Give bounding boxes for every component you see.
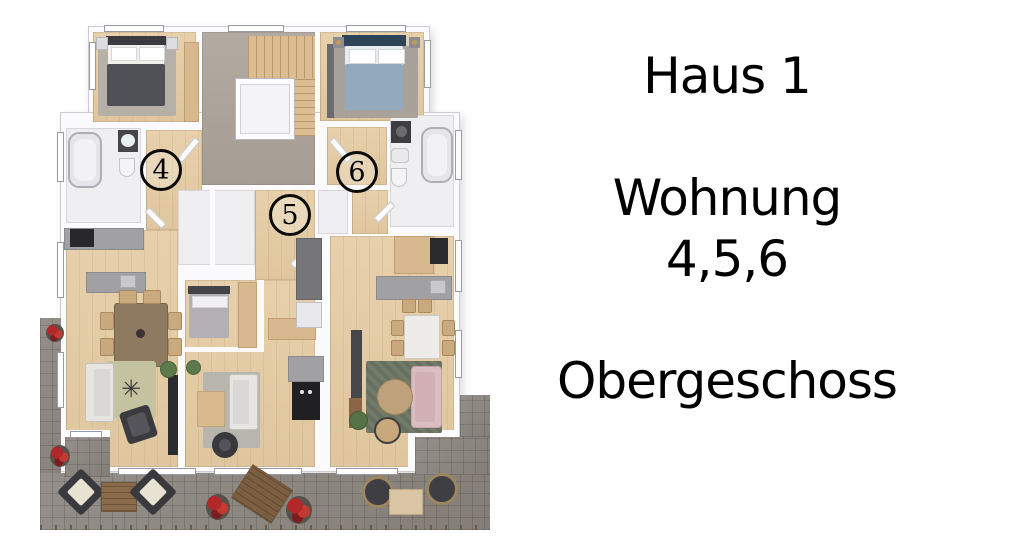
rug-star-icon: ✳ <box>121 375 141 403</box>
balcony-door-apt4-left <box>70 431 102 438</box>
apt6-chair <box>442 340 455 356</box>
terrace-flower-pot <box>286 496 312 524</box>
terrace-round-chair <box>426 473 458 505</box>
window-top-left <box>104 25 164 32</box>
apt4-chair <box>100 312 114 330</box>
apt6-dining-table <box>404 315 440 359</box>
apt5-kitchen-counter <box>288 356 324 382</box>
apt6-round-coffee-table <box>377 379 413 415</box>
terrace-flower-pot <box>206 494 230 520</box>
plan-subtitle-wohnung: Wohnung <box>520 168 934 229</box>
apt4-chair <box>100 338 114 356</box>
apt6-bed-blanket <box>345 64 403 110</box>
apt5-island-knob <box>308 390 312 394</box>
apt5-pouf-top <box>219 439 231 451</box>
apt5-plant <box>186 360 201 375</box>
terrace-table <box>389 489 423 515</box>
apt6-tv-sideboard <box>351 330 362 398</box>
center-bathroom-divider-wall <box>210 190 215 265</box>
stairs-right-flight <box>293 78 315 136</box>
balcony-door-apt6 <box>336 468 398 475</box>
balcony-railing <box>40 525 490 530</box>
apt6-bathtub <box>421 127 453 183</box>
window-left-living <box>57 352 64 408</box>
window-top-right <box>346 25 406 32</box>
apt6-chair <box>418 299 432 313</box>
apt4-tv-sideboard <box>168 375 178 455</box>
window-top-stairwell <box>228 25 284 32</box>
window-left-kitchen <box>57 242 64 298</box>
plan-subtitle-numbers: 4,5,6 <box>520 229 934 290</box>
apt6-kitchen-sink <box>430 280 446 294</box>
window-bedroom6-right <box>424 40 431 88</box>
terrace-flower-pot <box>50 445 70 467</box>
apt6-sofa-seat <box>415 372 435 422</box>
apt4-bed-headboard <box>106 36 166 45</box>
apt4-sink <box>121 134 135 147</box>
apt6-side-table <box>374 417 401 444</box>
terrace-right-notch <box>415 437 490 475</box>
apt4-chair <box>143 290 161 304</box>
apt4-wardrobe <box>184 42 199 122</box>
page: ✳ <box>0 0 1024 540</box>
apt4-bathtub <box>68 132 102 188</box>
center-bathrooms-floor <box>178 190 255 265</box>
apt4-nightstand-right <box>166 37 178 50</box>
apt5-sofa <box>229 374 258 430</box>
apt6-toilet <box>391 168 407 187</box>
apt6-stove <box>430 238 448 264</box>
apt6-lamp-left <box>336 40 341 45</box>
apt5-bedroom-wall-vertical <box>257 280 264 352</box>
window-right-living <box>455 330 462 378</box>
apt4-bed-pillow-left <box>111 47 137 61</box>
apt4-sofa <box>85 363 114 422</box>
apt6-chair <box>402 299 416 313</box>
unit-number: 6 <box>348 159 365 186</box>
apt6-kitchen-wood-counter <box>394 236 434 274</box>
apt5-bed-headboard <box>188 286 230 294</box>
apt6-sink <box>391 148 409 163</box>
apt6-chair <box>391 340 404 356</box>
apt6-chair <box>391 320 404 336</box>
apt4-bed-blanket <box>107 64 165 106</box>
window-left-bath <box>57 132 64 182</box>
plan-title: Haus 1 <box>520 46 934 107</box>
terrace-left-notch <box>65 437 110 477</box>
unit-badge-4: 4 <box>140 149 182 191</box>
stairs-upper-flight <box>248 36 315 78</box>
apt5-island-knob <box>300 390 304 394</box>
terrace-right-upper <box>460 395 490 437</box>
unit-number: 5 <box>281 202 298 229</box>
apt5-wardrobe <box>238 282 257 348</box>
apt4-kitchen-sink <box>120 275 136 288</box>
apt6-chair <box>442 320 455 336</box>
apt5-kitchen-tall-cabinets <box>296 238 322 300</box>
floor-plan: ✳ <box>0 0 512 540</box>
apt4-plant <box>160 361 177 378</box>
apt6-plant <box>349 411 368 430</box>
unit-number: 4 <box>152 157 169 184</box>
elevator-car <box>240 84 290 134</box>
apt6-lamp-right <box>412 40 417 45</box>
apt4-nightstand-left <box>96 37 108 50</box>
apt5-bed-pillows <box>192 296 228 308</box>
window-bedroom4-left <box>89 42 96 90</box>
apt4-chair <box>168 338 182 356</box>
window-right-bath <box>455 130 462 180</box>
unit-badge-6: 6 <box>336 151 378 193</box>
apt4-chair <box>119 290 137 304</box>
apt4-toilet <box>119 158 135 177</box>
apt6-washer-drum <box>396 126 407 137</box>
plan-floor-label: Obergeschoss <box>520 351 934 412</box>
apt4-chair <box>168 312 182 330</box>
apt6-wc-floor <box>318 190 348 234</box>
apt5-fridge <box>296 302 322 328</box>
apt4-table-centerpiece <box>136 329 145 338</box>
apt4-bed-pillow-right <box>139 47 165 61</box>
window-right-kitchen <box>455 240 462 292</box>
apt5-coffee-table <box>197 391 225 427</box>
apt6-bed-headboard <box>342 35 406 46</box>
apt6-bed-pillow-left <box>349 49 376 64</box>
apt6-bed-pillow-right <box>378 49 405 64</box>
apt5-kitchen-island <box>292 382 320 420</box>
apt4-stove <box>70 229 94 247</box>
apt4-kitchen-island <box>86 272 146 293</box>
terrace-wood-table <box>101 482 137 512</box>
unit-badge-5: 5 <box>269 194 311 236</box>
terrace-flower-pot <box>46 324 64 342</box>
